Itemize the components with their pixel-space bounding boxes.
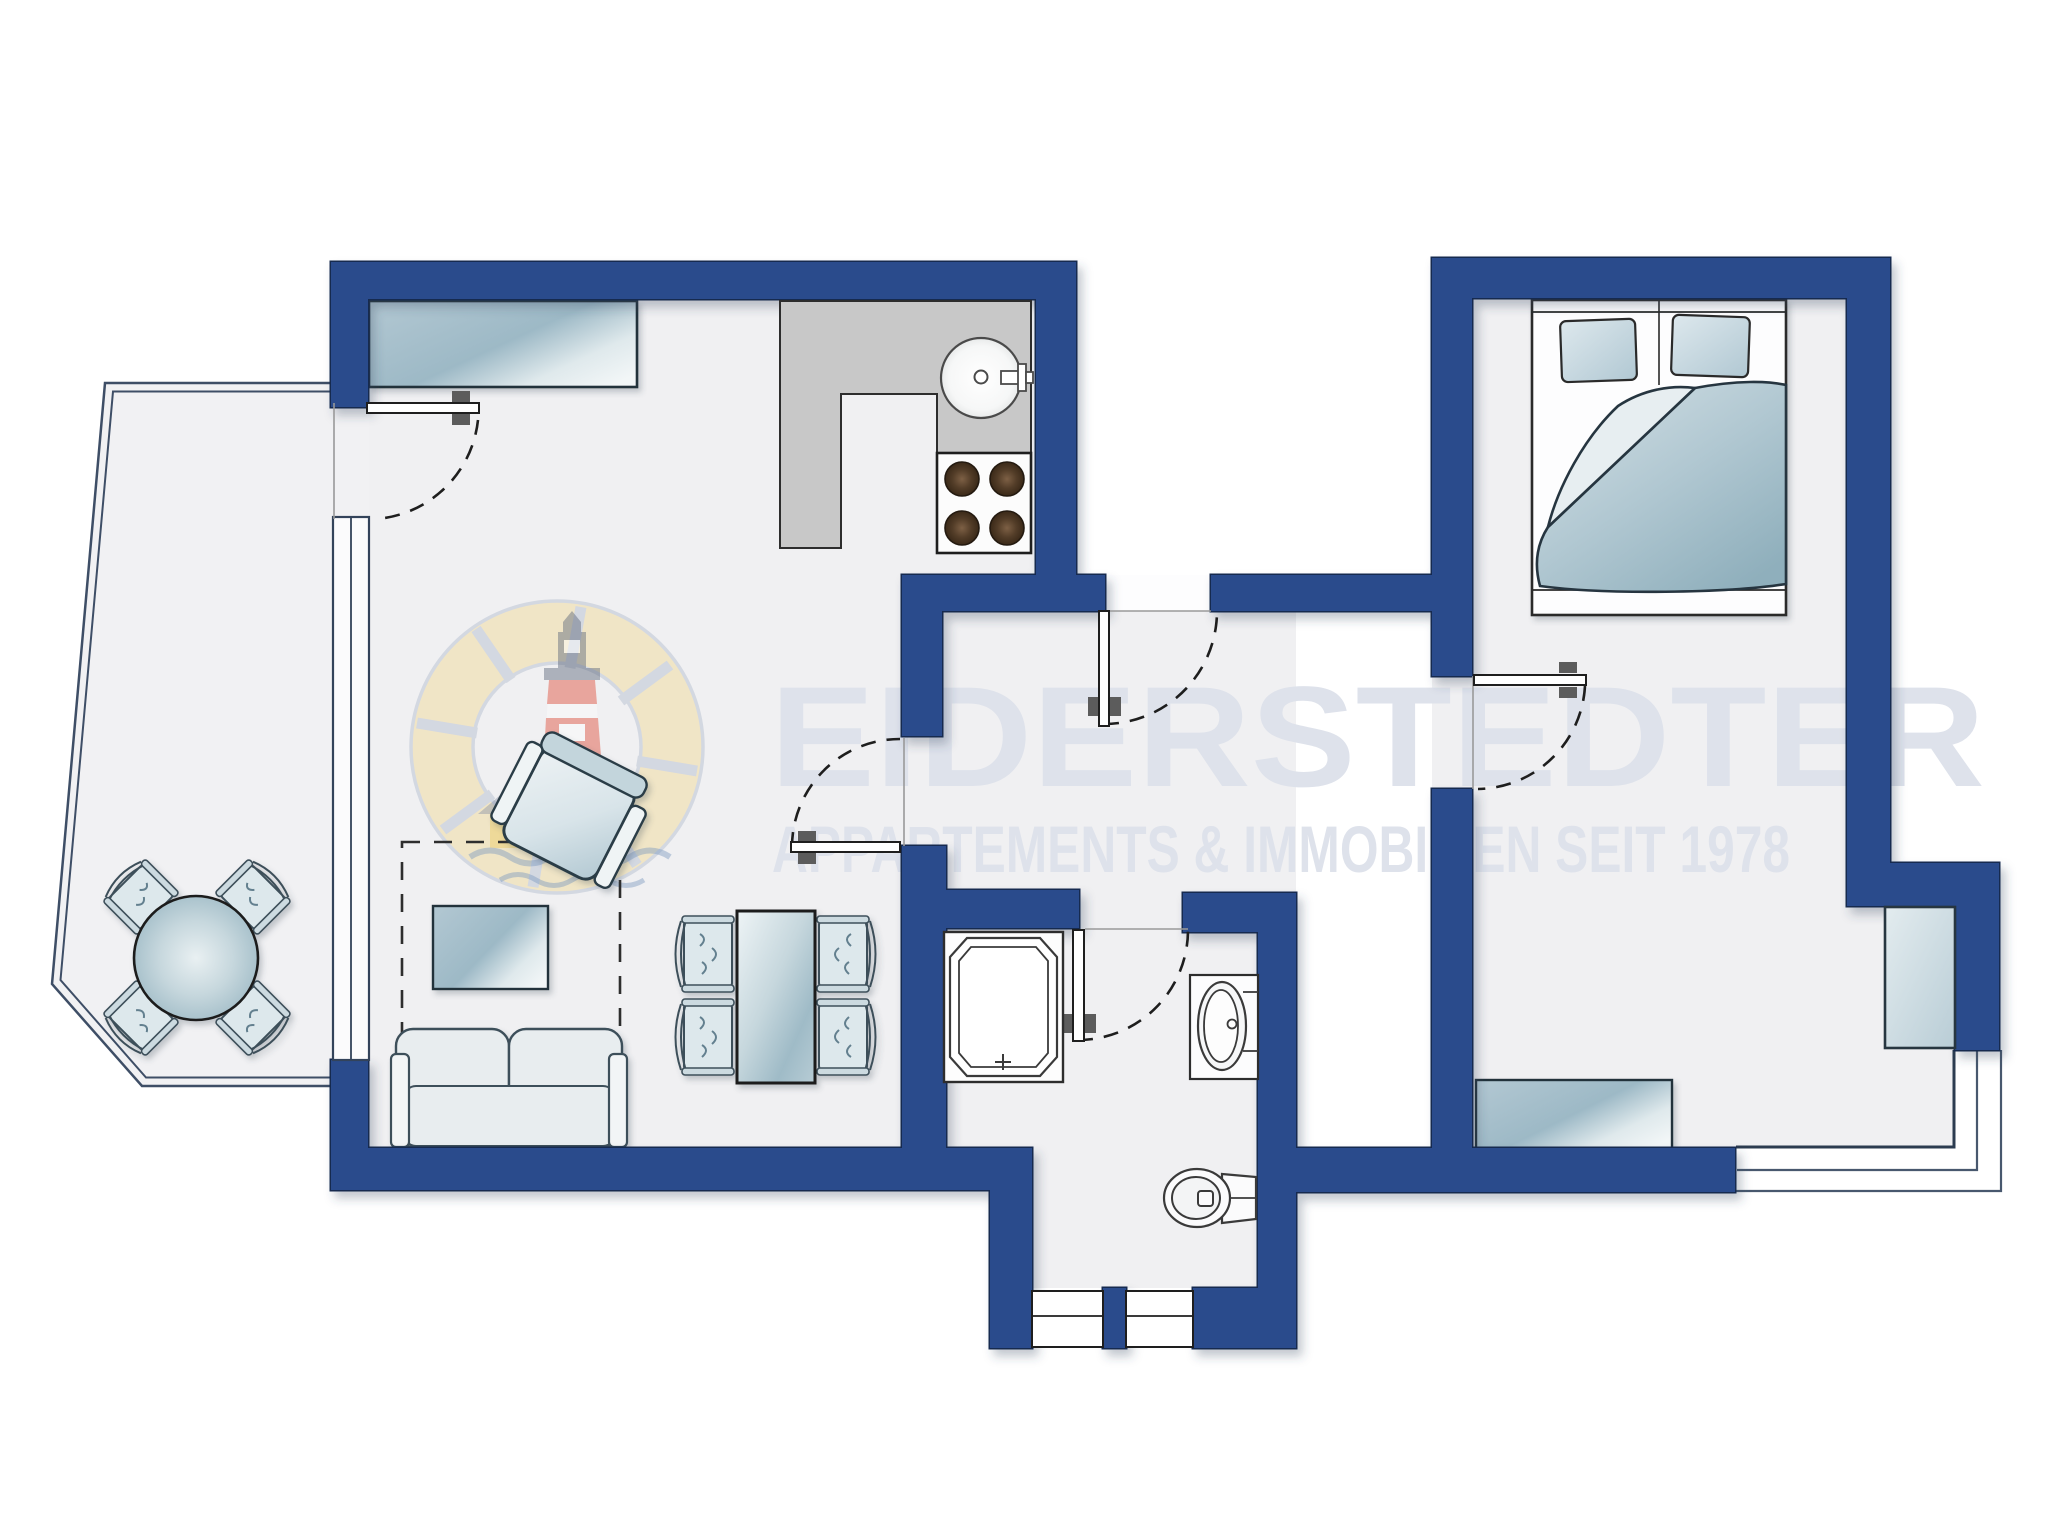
- svg-text:EIDERSTEDTER: EIDERSTEDTER: [770, 658, 1985, 817]
